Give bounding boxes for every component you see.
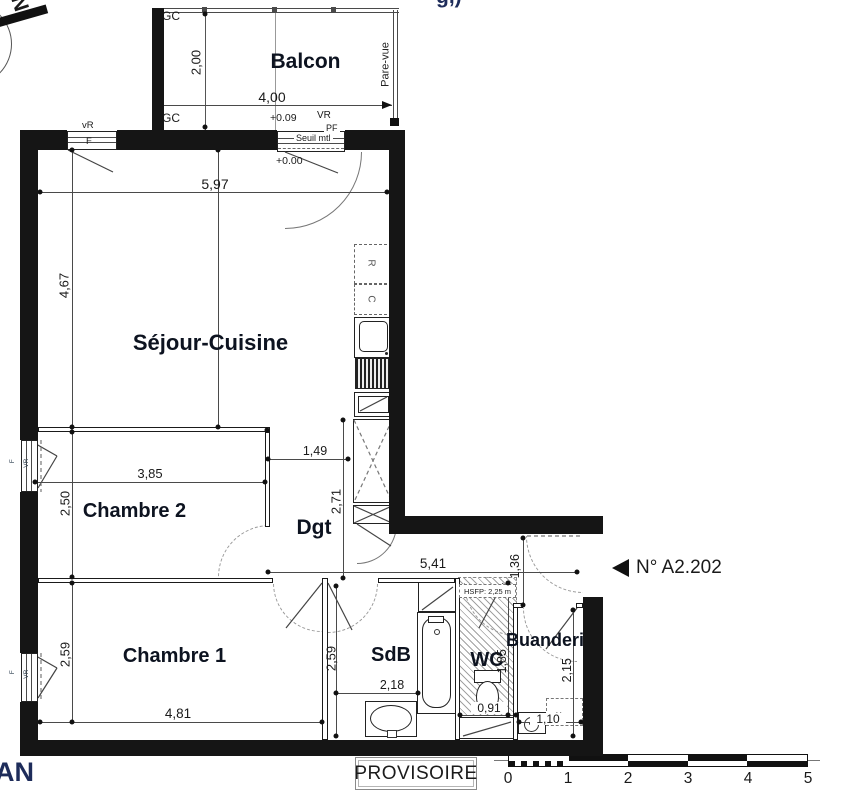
provisoire-label: PROVISOIRE — [356, 758, 476, 789]
wall-entry-top — [389, 516, 603, 534]
dim-line — [72, 150, 73, 427]
window-ch1-swing — [38, 668, 57, 698]
room-label-chambre1: Chambre 1 — [102, 646, 247, 666]
window-sejour-leaf-label: F — [86, 137, 92, 147]
scale-tick-5: 5 — [796, 771, 820, 787]
wc-bottom-door — [459, 717, 516, 739]
dim-dot — [266, 570, 271, 575]
sdb-cabinet — [418, 581, 458, 612]
scale-tick-2: 2 — [616, 771, 640, 787]
scale-seg — [628, 761, 688, 767]
plan-title-fragment: AN — [0, 759, 34, 786]
dim-wc-height: 1,85 — [496, 641, 509, 681]
wall-left-a — [20, 130, 38, 440]
dim-dot — [70, 575, 75, 580]
dim-dot — [571, 734, 576, 739]
window-ch1-shutter-label: VR — [24, 668, 31, 680]
kitchen-tall-cupboard — [353, 419, 393, 503]
kitchen-fridge-label: R — [366, 259, 376, 266]
dim-dot — [203, 12, 208, 17]
balcony-left-wall — [152, 8, 164, 130]
dim-dot — [571, 608, 576, 613]
dim-line — [268, 459, 348, 460]
dim-line — [523, 536, 524, 607]
dim-dot — [575, 570, 580, 575]
dim-balcony-width: 4,00 — [252, 90, 292, 104]
scale-tick-3: 3 — [676, 771, 700, 787]
dim-line — [336, 693, 418, 694]
dim-dot — [334, 691, 339, 696]
dim-sejour-width: 5,97 — [195, 177, 235, 191]
room-label-chambre2: Chambre 2 — [62, 501, 207, 521]
wc-soffit-box: HSFP: 2,25 m — [459, 584, 516, 598]
kitchen-sink-bowl — [359, 321, 388, 352]
scale-tick-1: 1 — [556, 771, 580, 787]
dim-dot — [521, 603, 526, 608]
dim-sdb-width: 2,18 — [372, 679, 412, 692]
pare-vue-screen — [393, 10, 394, 122]
dim-dot — [521, 536, 526, 541]
scale-seg — [688, 761, 748, 767]
wall-right-lower — [583, 597, 603, 740]
window-ch2-shutter-label: VR — [24, 457, 31, 469]
dim-chambre1-height: 2,59 — [59, 635, 72, 675]
floor-plan: N g,) GC GC Balcon Pare-vue 2,00 4,00 vR… — [0, 0, 841, 800]
dim-dot — [265, 428, 270, 433]
dim-dot — [341, 418, 346, 423]
dim-dot — [341, 576, 346, 581]
dim-chambre1-width: 4,81 — [158, 707, 198, 721]
balcony-door-threshold-label: Seuil mtl — [294, 134, 333, 143]
bathtub-tap — [428, 616, 444, 623]
room-label-balcon: Balcon — [263, 51, 348, 72]
title-fragment: g,) — [436, 0, 506, 9]
dim-dot — [416, 691, 421, 696]
unit-marker-triangle — [612, 559, 629, 577]
dim-wc-width: 0,91 — [471, 702, 507, 714]
partition-buanderie-top-b — [576, 603, 583, 608]
window-ch2-swing — [38, 456, 57, 488]
dim-dot — [346, 457, 351, 462]
dim-dot — [70, 148, 75, 153]
balcony-gc-bottom: GC — [162, 112, 180, 124]
balcony-gc-top: GC — [162, 10, 180, 22]
dim-dgt-height: 2,71 — [330, 482, 343, 522]
dim-dot — [266, 457, 271, 462]
dim-chambre2-height: 2,50 — [59, 484, 72, 524]
kitchen-hob — [355, 358, 391, 389]
dim-dot — [38, 720, 43, 725]
balcony-door-threshold-line — [278, 148, 344, 149]
dim-dgt-width: 1,49 — [295, 445, 335, 458]
kitchen-drainer-inner — [358, 396, 389, 413]
dim-dot — [506, 713, 511, 718]
pare-vue-label: Pare-vue — [381, 30, 392, 100]
kitchen-sink-tap — [385, 352, 388, 355]
dim-sejour-height: 4,67 — [58, 266, 71, 306]
dim-dot — [263, 480, 268, 485]
dim-line — [40, 192, 387, 193]
washbasin-b bowl — [370, 705, 412, 732]
dim-dot — [334, 584, 339, 589]
window-ch1-swing — [36, 656, 57, 668]
pare-vue-foot — [390, 118, 399, 126]
dim-line — [40, 722, 322, 723]
kitchen-appliance-box — [353, 505, 393, 524]
dim-dot — [458, 713, 463, 718]
window-sejour-swing — [68, 150, 113, 172]
dim-dot — [216, 425, 221, 430]
window-ch2-swing — [36, 444, 57, 456]
washbasin-tap — [387, 730, 397, 738]
title-fragment-clip: g,) — [436, 0, 506, 9]
dim-dot — [33, 480, 38, 485]
dim-chambre2-width: 3,85 — [130, 467, 170, 480]
dim-line — [156, 105, 392, 106]
dim-dot — [320, 720, 325, 725]
scale-seg-checker — [509, 761, 569, 767]
balcony-door-type-label: PF — [324, 124, 340, 133]
balcony-door-level-in: +0.00 — [276, 156, 303, 167]
bathtub-drain — [434, 629, 440, 635]
scale-tick-0: 0 — [496, 771, 520, 787]
wall-right-sejour — [389, 148, 405, 516]
balcony-rail-inner — [152, 12, 399, 13]
wall-top-b — [117, 130, 277, 150]
dim-entry-depth: 1,36 — [509, 546, 522, 586]
window-ch2-line — [31, 441, 32, 491]
window-ch1-line — [31, 654, 32, 701]
dim-dot — [38, 190, 43, 195]
partition-mid-right — [378, 578, 455, 583]
balcony-tick — [331, 7, 336, 12]
room-label-buanderie: Buanderie — [506, 631, 594, 649]
dim-dot — [70, 581, 75, 586]
kitchen-cooker-label: C — [366, 295, 376, 302]
dim-buanderie-width: 1,10 — [530, 713, 566, 725]
dim-dot — [334, 734, 339, 739]
dim-entry-corridor: 5,41 — [413, 557, 453, 571]
room-label-sejour: Séjour-Cuisine — [128, 332, 293, 354]
window-sejour-line — [68, 137, 116, 138]
balcony-door-shutter-label: VR — [317, 111, 331, 121]
dim-line — [268, 572, 577, 573]
dim-sdb-height: 2,59 — [325, 639, 338, 679]
dim-arrow — [382, 101, 392, 109]
wall-bottom — [20, 740, 603, 756]
scale-tick-4: 4 — [736, 771, 760, 787]
window-ch1-leaf-label: F — [10, 666, 17, 678]
wall-top-c — [345, 130, 405, 150]
wc-soffit-label: HSFP: 2,25 m — [464, 587, 511, 596]
balcony-door-line — [278, 143, 344, 144]
dim-balcony-depth: 2,00 — [190, 43, 203, 83]
window-ch2-leaf-label: F — [10, 455, 17, 467]
window-sejour-shutter-label: vR — [82, 121, 94, 131]
balcony-tick — [272, 7, 277, 12]
wall-left-c — [20, 702, 38, 740]
dim-dot — [70, 430, 75, 435]
dim-dot — [517, 720, 522, 725]
dim-dot — [203, 125, 208, 130]
dim-dot — [514, 713, 519, 718]
balcony-divider — [205, 12, 206, 130]
dim-dot — [506, 581, 511, 586]
window-sejour-frame — [67, 131, 117, 150]
dim-buanderie-height: 2,15 — [561, 650, 574, 690]
scale-seg — [569, 761, 629, 767]
room-label-sdb: SdB — [362, 645, 420, 665]
scale-bar-bottom-row — [509, 761, 807, 767]
unit-marker-label: N° A2.202 — [636, 558, 722, 577]
provisoire-box: PROVISOIRE — [355, 757, 477, 790]
window-sejour-line — [68, 142, 116, 143]
dim-dot — [70, 720, 75, 725]
pare-vue-screen-inner — [397, 10, 398, 122]
scale-seg — [747, 761, 807, 767]
wall-left-b — [20, 492, 38, 653]
balcony-door-level-out: +0.09 — [270, 113, 297, 124]
